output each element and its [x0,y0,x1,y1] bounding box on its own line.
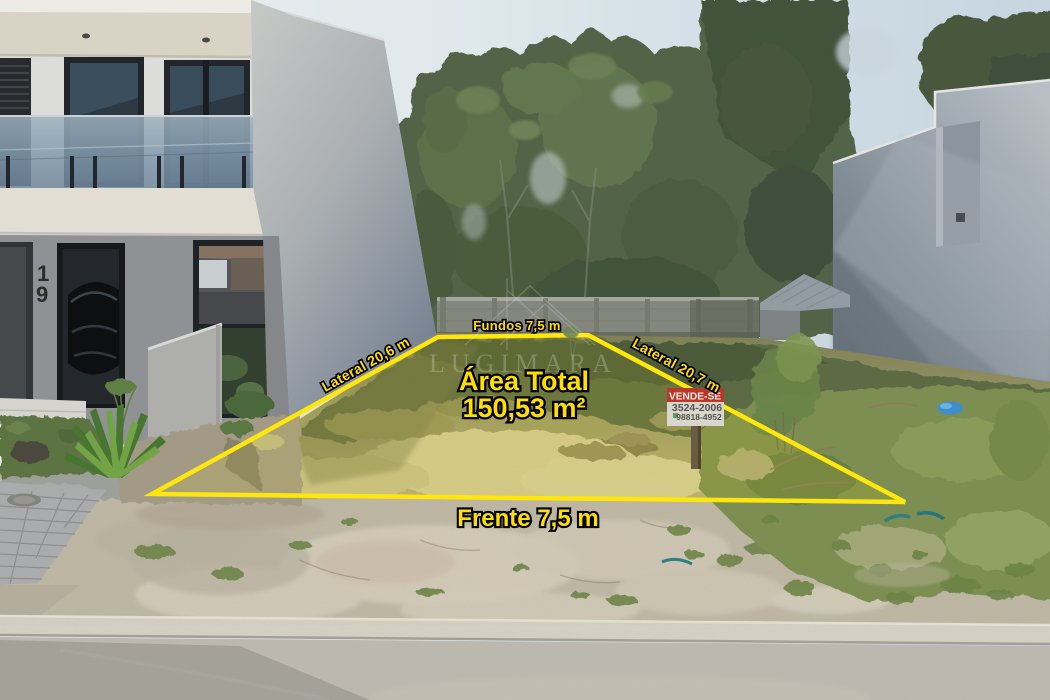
svg-text:Área Total: Área Total [459,365,589,396]
svg-text:98818-4952: 98818-4952 [676,412,722,422]
svg-text:9: 9 [36,282,48,307]
svg-text:Frente 7,5 m: Frente 7,5 m [457,505,598,532]
svg-text:Fundos 7,5 m: Fundos 7,5 m [473,318,560,333]
svg-text:150,53 m²: 150,53 m² [462,393,585,423]
